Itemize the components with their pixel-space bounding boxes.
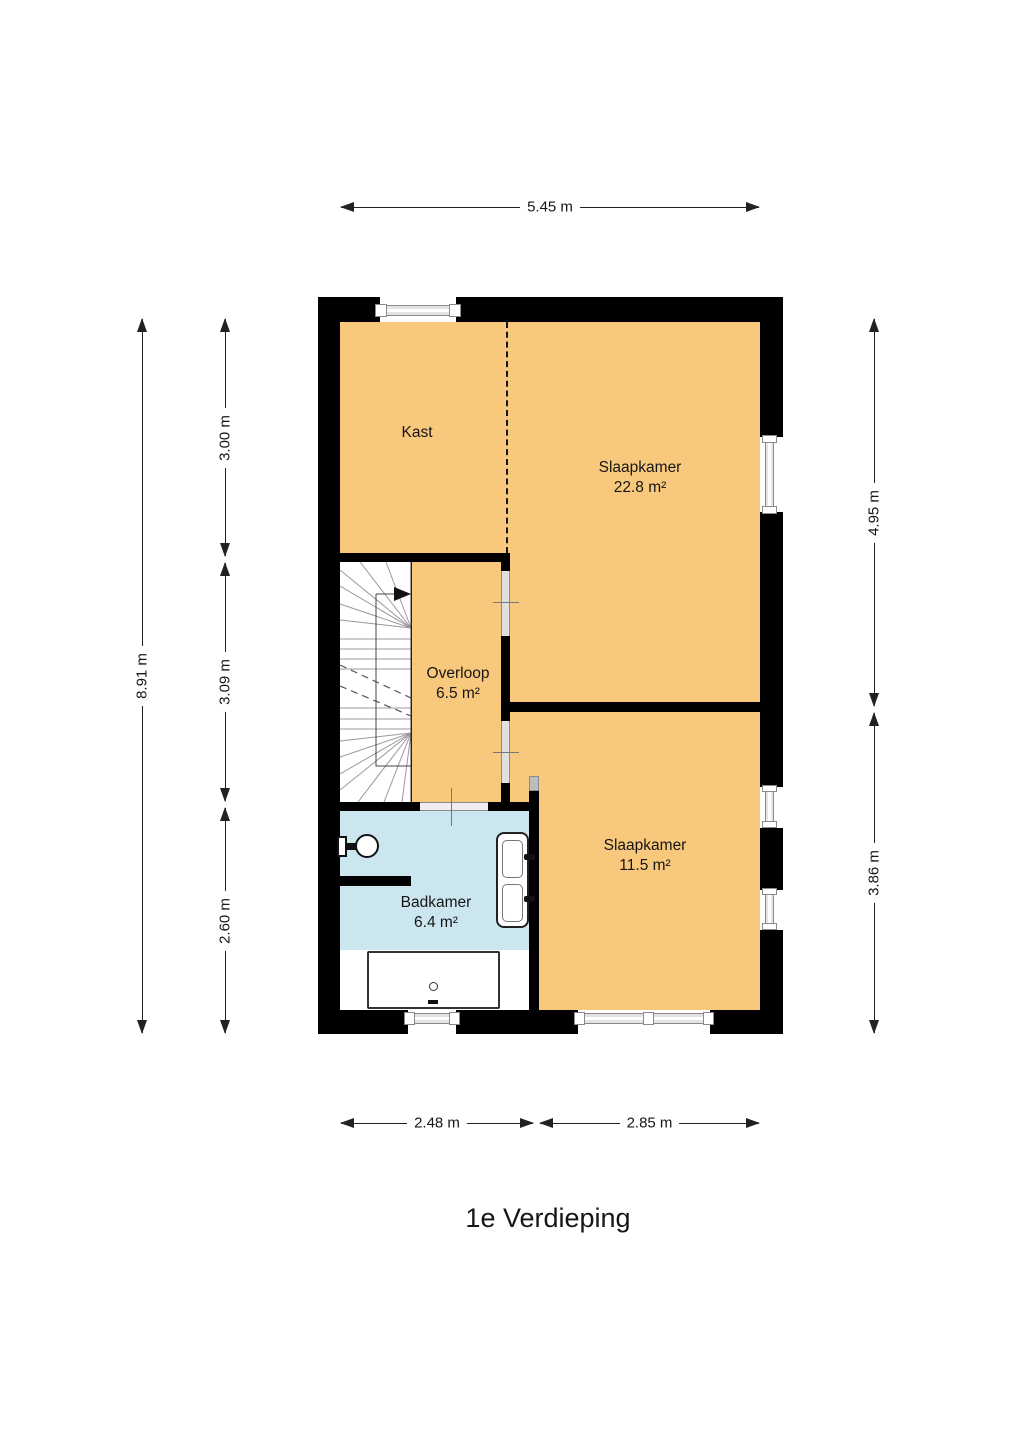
dimension-value: 4.95 m [866, 483, 883, 543]
window-jamb [643, 1012, 654, 1025]
arrowhead-up-icon [220, 807, 230, 821]
wall-overloop-stub [501, 562, 510, 571]
window-jamb [574, 1012, 585, 1025]
faucet-icon [524, 854, 535, 860]
arrowhead-down-icon [220, 788, 230, 802]
window-jamb [404, 1012, 415, 1025]
window-jamb [762, 506, 777, 514]
arrowhead-left-icon [340, 1118, 354, 1128]
dimension-value: 3.86 m [866, 843, 883, 903]
arrowhead-right-icon [746, 202, 760, 212]
toilet-tank-icon [337, 836, 347, 857]
room-label-slaapkamer-klein: Slaapkamer 11.5 m² [604, 836, 687, 876]
dimension-value: 5.45 m [520, 199, 580, 216]
dimension-left-middle: 3.09 m [218, 562, 232, 802]
kast-divider-dashed-line [506, 322, 508, 553]
floor-slaapkamer-groot [510, 553, 760, 702]
room-label-slaapkamer-groot: Slaapkamer 22.8 m² [599, 458, 682, 498]
bathtub-spout-icon [428, 1000, 438, 1004]
window-pane [410, 1017, 454, 1020]
arrowhead-down-icon [220, 1020, 230, 1034]
arrowhead-left-icon [340, 202, 354, 212]
stairs [340, 562, 412, 802]
wall-right-3 [760, 828, 783, 890]
arrowhead-down-icon [869, 693, 879, 707]
room-area: 6.5 m² [427, 684, 490, 704]
arrowhead-up-icon [137, 318, 147, 332]
window-jamb [762, 923, 777, 930]
dimension-right-bottom: 3.86 m [867, 712, 881, 1034]
wall-cap [529, 776, 539, 791]
room-name: Slaapkamer [599, 458, 682, 478]
dimension-bottom-left: 2.48 m [340, 1116, 534, 1130]
window-pane [768, 439, 771, 510]
door-tick [451, 788, 452, 826]
wall-top-right [456, 297, 783, 322]
floor-slaapkamer-klein [539, 802, 760, 1010]
room-area: 22.8 m² [599, 478, 682, 498]
door-overloop-slaapkamer-groot [501, 571, 510, 636]
dimension-right-top: 4.95 m [867, 318, 881, 707]
window-jamb [449, 1012, 460, 1025]
dimension-left-bottom: 2.60 m [218, 807, 232, 1034]
bathtub-drain-icon [429, 982, 438, 991]
window-right1-icon [765, 437, 774, 512]
arrowhead-up-icon [220, 562, 230, 576]
door-tick [493, 602, 519, 603]
dimension-value: 3.00 m [217, 408, 234, 468]
window-jamb [703, 1012, 714, 1025]
room-label-badkamer: Badkamer 6.4 m² [401, 893, 472, 933]
sink-basin-icon [502, 884, 523, 922]
room-name: Slaapkamer [604, 836, 687, 856]
wall-bottom-3 [710, 1010, 783, 1034]
arrowhead-up-icon [869, 712, 879, 726]
wall-right-2 [760, 512, 783, 787]
arrowhead-down-icon [137, 1020, 147, 1034]
room-label-kast: Kast [401, 423, 432, 443]
wall-right-1 [760, 297, 783, 437]
dimension-value: 3.09 m [217, 652, 234, 712]
room-label-overloop: Overloop 6.5 m² [427, 664, 490, 704]
wall-bottom-1 [318, 1010, 408, 1034]
arrowhead-up-icon [869, 318, 879, 332]
dimension-value: 2.60 m [217, 891, 234, 951]
floor-title: 1e Verdieping [348, 1203, 748, 1234]
window-top-icon [380, 305, 456, 316]
dimension-value: 2.48 m [407, 1115, 467, 1132]
wall-kast-south [340, 553, 510, 562]
window-pane [382, 309, 454, 312]
arrowhead-right-icon [520, 1118, 534, 1128]
room-area: 6.4 m² [401, 913, 472, 933]
room-name: Overloop [427, 664, 490, 684]
bathtub-icon [367, 951, 500, 1009]
dimension-top: 5.45 m [340, 200, 760, 214]
dimension-left-total: 8.91 m [135, 318, 149, 1034]
toilet-bowl-icon [355, 834, 379, 858]
wall-left [318, 297, 340, 1034]
room-name: Badkamer [401, 893, 472, 913]
arrowhead-right-icon [746, 1118, 760, 1128]
dimension-left-top: 3.00 m [218, 318, 232, 557]
window-jamb [449, 304, 461, 317]
dimension-value: 8.91 m [134, 646, 151, 706]
sink-basin-icon [502, 840, 523, 878]
wall-bottom-2 [456, 1010, 578, 1034]
room-area: 11.5 m² [604, 856, 687, 876]
door-overloop-badkamer [420, 802, 488, 811]
dimension-value: 2.85 m [620, 1115, 680, 1132]
wall-bedroom-divider [501, 702, 760, 712]
arrowhead-down-icon [869, 1020, 879, 1034]
wall-toilet-partition [340, 876, 411, 886]
room-name: Kast [401, 423, 432, 443]
faucet-icon [524, 896, 535, 902]
floor-slaapkamer-klein-upper [510, 712, 760, 802]
window-jamb [762, 821, 777, 828]
window-jamb [762, 888, 777, 895]
dimension-bottom-right: 2.85 m [539, 1116, 760, 1130]
window-jamb [762, 435, 777, 443]
window-jamb [375, 304, 387, 317]
wall-badkamer-north-left [340, 802, 420, 811]
stair-direction-arrow-icon [394, 587, 411, 601]
window-jamb [762, 785, 777, 792]
arrowhead-up-icon [220, 318, 230, 332]
arrowhead-left-icon [539, 1118, 553, 1128]
floor-plan-canvas: Kast Slaapkamer 22.8 m² Overloop 6.5 m² … [0, 0, 1018, 1440]
door-tick [493, 752, 519, 753]
arrowhead-down-icon [220, 543, 230, 557]
vanity-double-sink-icon [496, 832, 529, 928]
